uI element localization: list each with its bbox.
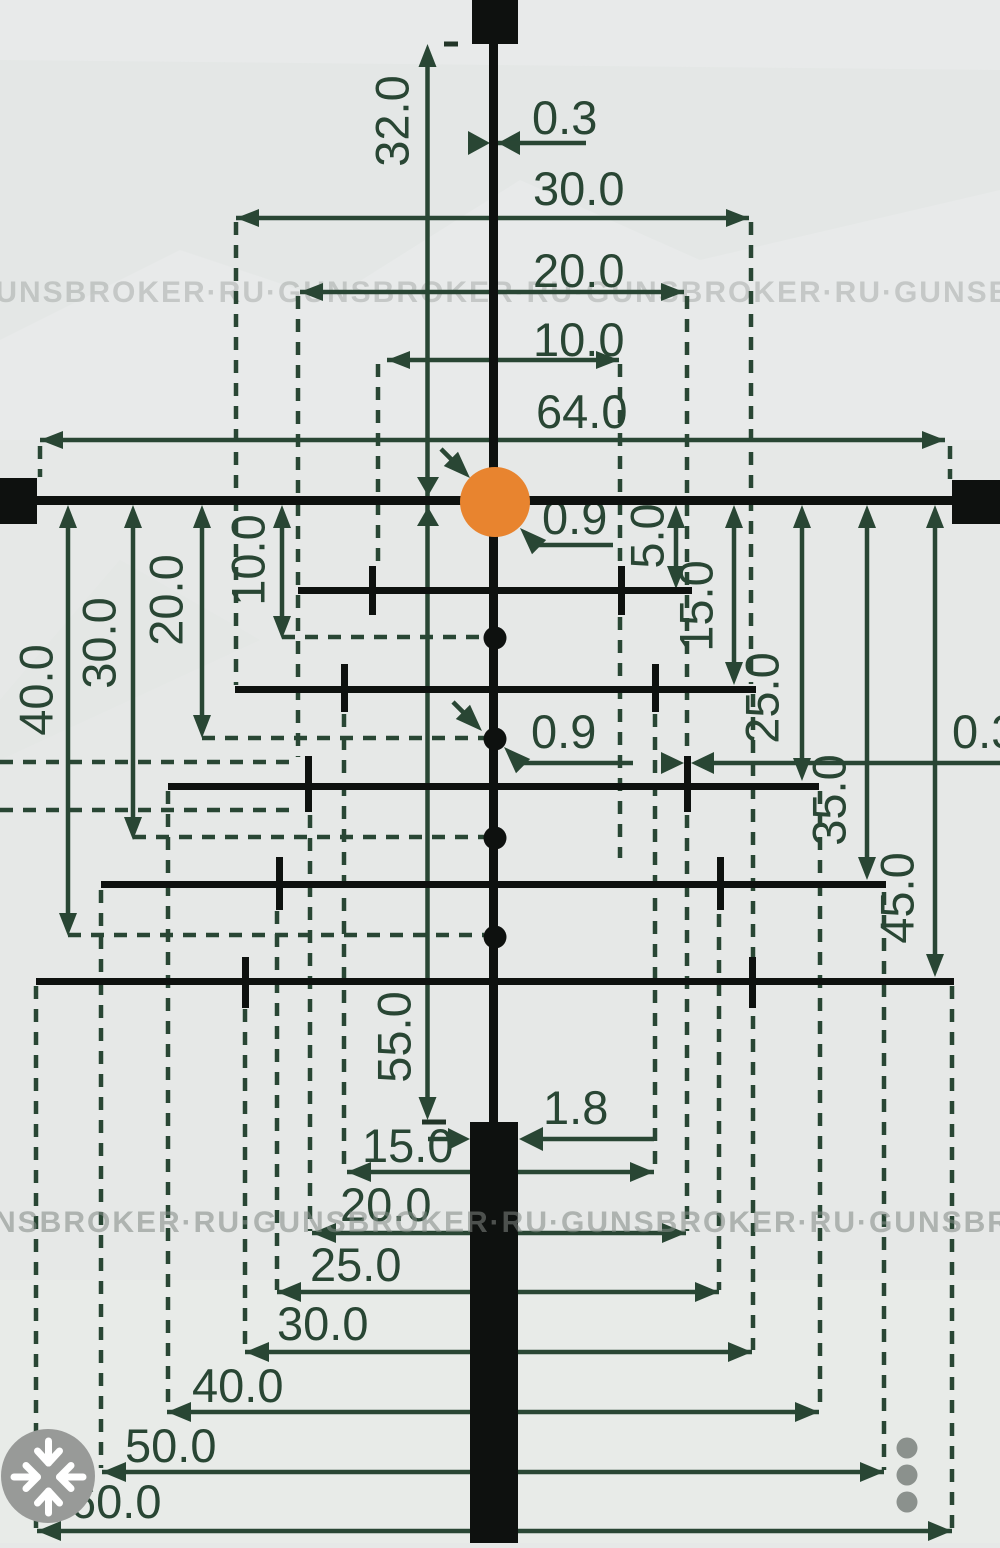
svg-text:40.0: 40.0: [9, 644, 62, 735]
svg-text:10.0: 10.0: [533, 313, 624, 366]
svg-text:30.0: 30.0: [72, 597, 125, 688]
svg-text:40.0: 40.0: [192, 1359, 283, 1412]
svg-text:50.0: 50.0: [125, 1419, 216, 1472]
svg-text:32.0: 32.0: [365, 75, 418, 166]
svg-text:0.9: 0.9: [531, 705, 596, 758]
svg-text:30.0: 30.0: [533, 162, 624, 215]
svg-text:30.0: 30.0: [277, 1297, 368, 1350]
svg-text:15.0: 15.0: [362, 1119, 453, 1172]
svg-text:20.0: 20.0: [533, 244, 624, 297]
svg-text:25.0: 25.0: [310, 1238, 401, 1291]
svg-text:0.3: 0.3: [532, 91, 597, 144]
svg-text:10.0: 10.0: [221, 514, 274, 605]
svg-text:64.0: 64.0: [536, 385, 627, 438]
svg-text:15.0: 15.0: [669, 560, 722, 651]
svg-text:1.8: 1.8: [543, 1081, 608, 1134]
svg-text:55.0: 55.0: [367, 991, 420, 1082]
svg-text:5.0: 5.0: [620, 503, 673, 568]
svg-text:25.0: 25.0: [735, 652, 788, 743]
svg-text:35.0: 35.0: [802, 754, 855, 845]
svg-text:20.0: 20.0: [139, 554, 192, 645]
svg-text:0.3: 0.3: [952, 705, 1000, 758]
svg-text:45.0: 45.0: [870, 852, 923, 943]
svg-text:GUNSBROKER·RU·GUNSBROKER·RU·GU: GUNSBROKER·RU·GUNSBROKER·RU·GUNSBROKER·R…: [0, 1206, 1000, 1239]
